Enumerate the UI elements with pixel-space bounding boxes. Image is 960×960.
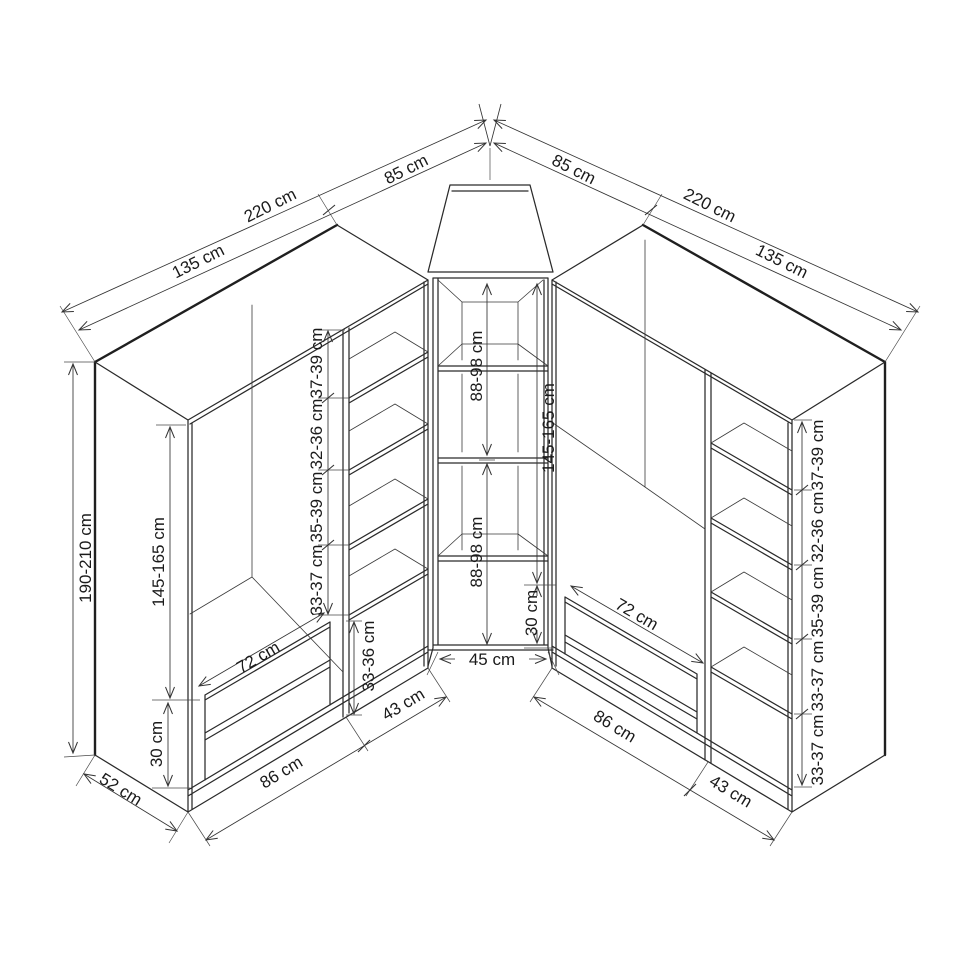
dim-label-left-gap-2: 35-39 cm <box>307 472 326 543</box>
dim-label-height: 190-210 cm <box>76 513 95 603</box>
dim-label-corner-hanging: 145-165 cm <box>539 383 558 473</box>
corner-unit-interior-lines <box>438 280 548 556</box>
dim-label-topright-220: 220 cm <box>681 184 739 226</box>
left-unit-silhouette <box>95 225 337 755</box>
dim-label-topright-135: 135 cm <box>753 240 811 282</box>
dimension-witness-lines <box>60 104 920 846</box>
left-unit-structure <box>95 225 428 812</box>
dim-label-right-gap-2: 33-37 cm <box>808 641 827 712</box>
dim-label-right-shelf-col-width: 43 cm <box>706 771 755 811</box>
dim-label-corner-base: 30 cm <box>522 590 541 636</box>
dim-label-left-bottom-gap: 33-36 cm <box>359 621 378 692</box>
dim-label-corner-upper: 88-98 cm <box>467 331 486 402</box>
dim-label-left-front-width: 86 cm <box>256 752 305 792</box>
dim-line-topleft-inner <box>79 143 486 330</box>
dim-label-left-gap-4: 37-39 cm <box>307 328 326 399</box>
technical-drawing-page: 135 cm 220 cm 85 cm 85 cm 220 cm 135 cm … <box>0 0 960 960</box>
dim-label-right-front-width: 86 cm <box>590 706 639 746</box>
dim-label-right-gap-3: 35-39 cm <box>808 567 827 638</box>
right-unit-silhouette <box>643 225 885 755</box>
wardrobe-diagram-canvas: 135 cm 220 cm 85 cm 85 cm 220 cm 135 cm … <box>0 0 960 960</box>
left-wardrobe-unit <box>95 225 428 812</box>
dim-label-left-shelf-col-width: 43 cm <box>378 684 427 724</box>
dim-label-left-drawer-height: 30 cm <box>147 721 166 767</box>
apex-v-mark <box>479 104 501 146</box>
dim-label-left-drawer-width: 72 cm <box>233 638 283 678</box>
dim-label-topleft-135: 135 cm <box>169 240 227 282</box>
dim-label-corner-width: 45 cm <box>469 650 515 669</box>
dim-label-topleft-220: 220 cm <box>241 184 299 226</box>
dim-label-left-gap-1: 33-37 cm <box>307 545 326 616</box>
dim-label-right-gap-5: 37-39 cm <box>808 420 827 491</box>
dim-label-corner-lower: 88-98 cm <box>467 517 486 588</box>
dim-line-right-bottom-widths <box>534 697 774 840</box>
dimension-lines <box>62 120 918 840</box>
dim-line-topright-inner <box>494 143 901 330</box>
dim-label-depth: 52 cm <box>96 769 145 809</box>
dim-label-right-gap-4: 32-36 cm <box>808 492 827 563</box>
dim-label-left-hanging: 145-165 cm <box>149 517 168 607</box>
dim-label-left-gap-3: 32-36 cm <box>307 399 326 470</box>
dim-label-right-gap-1: 33-37 cm <box>808 715 827 786</box>
